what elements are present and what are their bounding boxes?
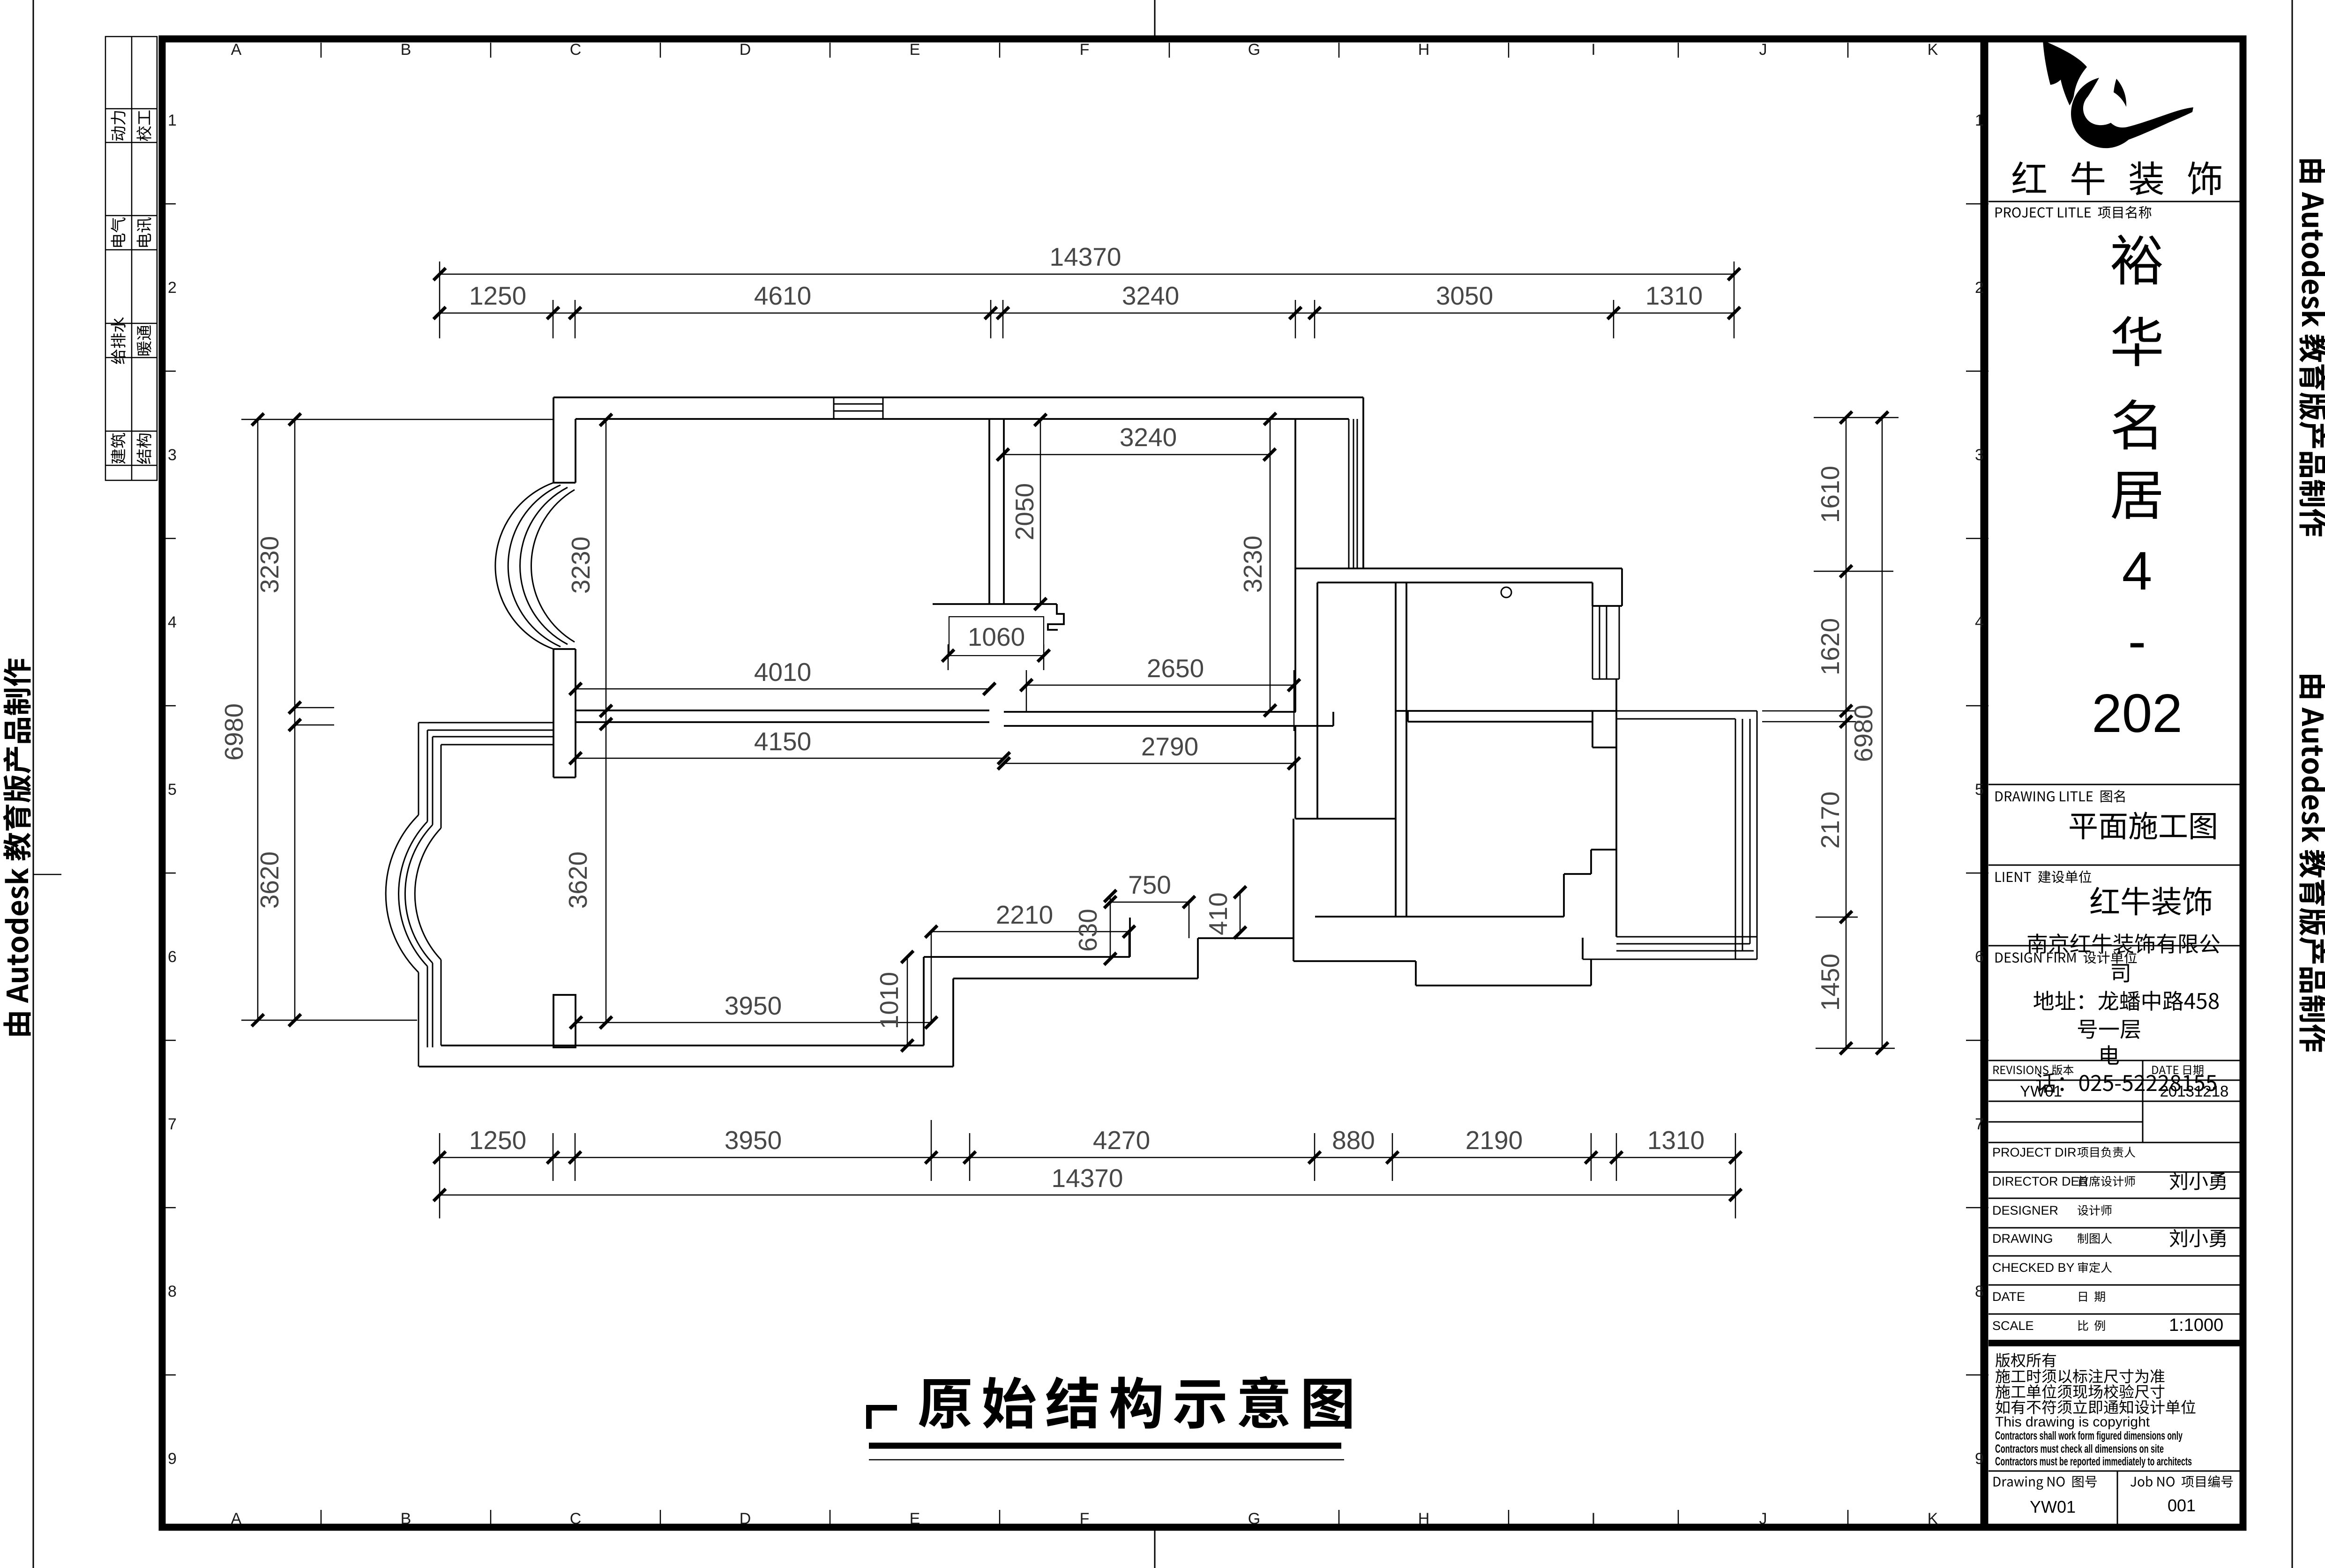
svg-text:1:1000: 1:1000 [2169,1315,2223,1335]
svg-text:1250: 1250 [469,281,526,310]
svg-text:3240: 3240 [1120,423,1177,452]
svg-text:9: 9 [1975,1450,1984,1468]
svg-text:14370: 14370 [1052,1164,1123,1193]
svg-text:1060: 1060 [968,622,1025,651]
svg-text:B: B [401,41,411,59]
svg-text:1010: 1010 [875,972,904,1029]
svg-text:This drawing is copyright: This drawing is copyright [1995,1414,2150,1430]
svg-text:G: G [1248,1510,1260,1528]
svg-text:3950: 3950 [725,991,782,1020]
svg-text:I: I [1591,1510,1595,1528]
svg-text:D: D [740,1510,751,1528]
svg-text:7: 7 [1975,1115,1984,1133]
svg-text:4270: 4270 [1093,1126,1150,1155]
svg-text:4010: 4010 [754,657,811,687]
svg-text:1450: 1450 [1816,954,1845,1011]
svg-text:K: K [1928,1510,1938,1528]
svg-text:14370: 14370 [1050,242,1121,271]
svg-text:E: E [910,1510,920,1528]
svg-text:4610: 4610 [754,281,811,310]
svg-text:1: 1 [168,112,177,129]
svg-text:4: 4 [2122,540,2153,601]
svg-text:3230: 3230 [1238,536,1267,593]
svg-text:Contractors must be reported i: Contractors must be reported immediately… [1995,1455,2192,1468]
svg-text:8: 8 [1975,1283,1984,1300]
svg-text:DRAWING: DRAWING [1992,1232,2053,1246]
svg-text:PROJECT DIR: PROJECT DIR [1992,1145,2077,1159]
svg-text:YW01: YW01 [2020,1083,2062,1100]
svg-text:F: F [1080,41,1090,59]
svg-text:2190: 2190 [1465,1126,1523,1155]
svg-text:750: 750 [1128,870,1171,899]
svg-text:CHECKED BY: CHECKED BY [1992,1261,2075,1275]
svg-text:A: A [231,1510,242,1528]
svg-text:Contractors shall work form fi: Contractors shall work form figured dime… [1995,1429,2183,1442]
svg-text:2790: 2790 [1141,732,1198,761]
svg-text:4: 4 [1975,613,1984,631]
svg-text:2650: 2650 [1147,654,1204,683]
svg-text:3240: 3240 [1122,281,1179,310]
svg-text:1: 1 [1975,112,1984,129]
svg-text:6: 6 [1975,948,1984,966]
svg-text:1620: 1620 [1816,618,1845,675]
svg-text:9: 9 [168,1450,177,1468]
svg-text:3230: 3230 [566,537,595,594]
svg-text:2170: 2170 [1816,791,1845,849]
svg-text:6980: 6980 [1849,705,1878,762]
svg-text:DESIGNER: DESIGNER [1992,1203,2058,1217]
svg-text:2210: 2210 [996,900,1053,929]
svg-text:5: 5 [1975,781,1984,799]
svg-text:6980: 6980 [219,703,248,761]
svg-text:6: 6 [168,948,177,966]
svg-text:1250: 1250 [469,1126,526,1155]
svg-text:H: H [1418,41,1430,59]
svg-text:SCALE: SCALE [1992,1319,2034,1333]
svg-text:J: J [1759,1510,1767,1528]
svg-text:3620: 3620 [255,851,284,909]
svg-text:4: 4 [168,613,177,631]
svg-text:D: D [740,41,751,59]
svg-text:I: I [1591,41,1595,59]
svg-text:20131218: 20131218 [2160,1083,2229,1100]
svg-text:1610: 1610 [1816,466,1845,523]
svg-text:G: G [1248,41,1260,59]
svg-text:A: A [231,41,242,59]
svg-text:5: 5 [168,781,177,799]
svg-text:1310: 1310 [1647,1126,1705,1155]
svg-text:YW01: YW01 [2030,1497,2076,1516]
svg-text:C: C [570,41,582,59]
svg-text:3230: 3230 [255,536,284,593]
svg-text:630: 630 [1073,909,1102,952]
svg-text:E: E [910,41,920,59]
svg-text:202: 202 [2092,683,2183,744]
svg-text:880: 880 [1332,1126,1375,1155]
svg-text:B: B [401,1510,411,1528]
svg-text:DIRECTOR DER: DIRECTOR DER [1992,1174,2088,1188]
svg-text:Contractors must check all dim: Contractors must check all dimensions on… [1995,1442,2164,1456]
svg-text:001: 001 [2168,1496,2196,1515]
svg-text:3: 3 [168,446,177,464]
svg-text:J: J [1759,41,1767,59]
svg-text:-: - [2128,611,2146,672]
svg-text:K: K [1928,41,1938,59]
svg-text:DATE: DATE [1992,1290,2025,1304]
svg-text:8: 8 [168,1283,177,1300]
svg-text:3: 3 [1975,446,1984,464]
svg-text:3620: 3620 [563,851,592,909]
svg-text:410: 410 [1204,892,1233,935]
svg-text:3950: 3950 [725,1126,782,1155]
svg-text:1310: 1310 [1645,281,1703,310]
svg-text:H: H [1418,1510,1430,1528]
svg-text:2050: 2050 [1010,483,1039,540]
svg-text:3050: 3050 [1436,281,1493,310]
svg-text:7: 7 [168,1115,177,1133]
svg-text:2: 2 [1975,279,1984,297]
svg-text:C: C [570,1510,582,1528]
svg-text:F: F [1080,1510,1090,1528]
svg-text:4150: 4150 [754,727,811,756]
svg-text:2: 2 [168,279,177,297]
